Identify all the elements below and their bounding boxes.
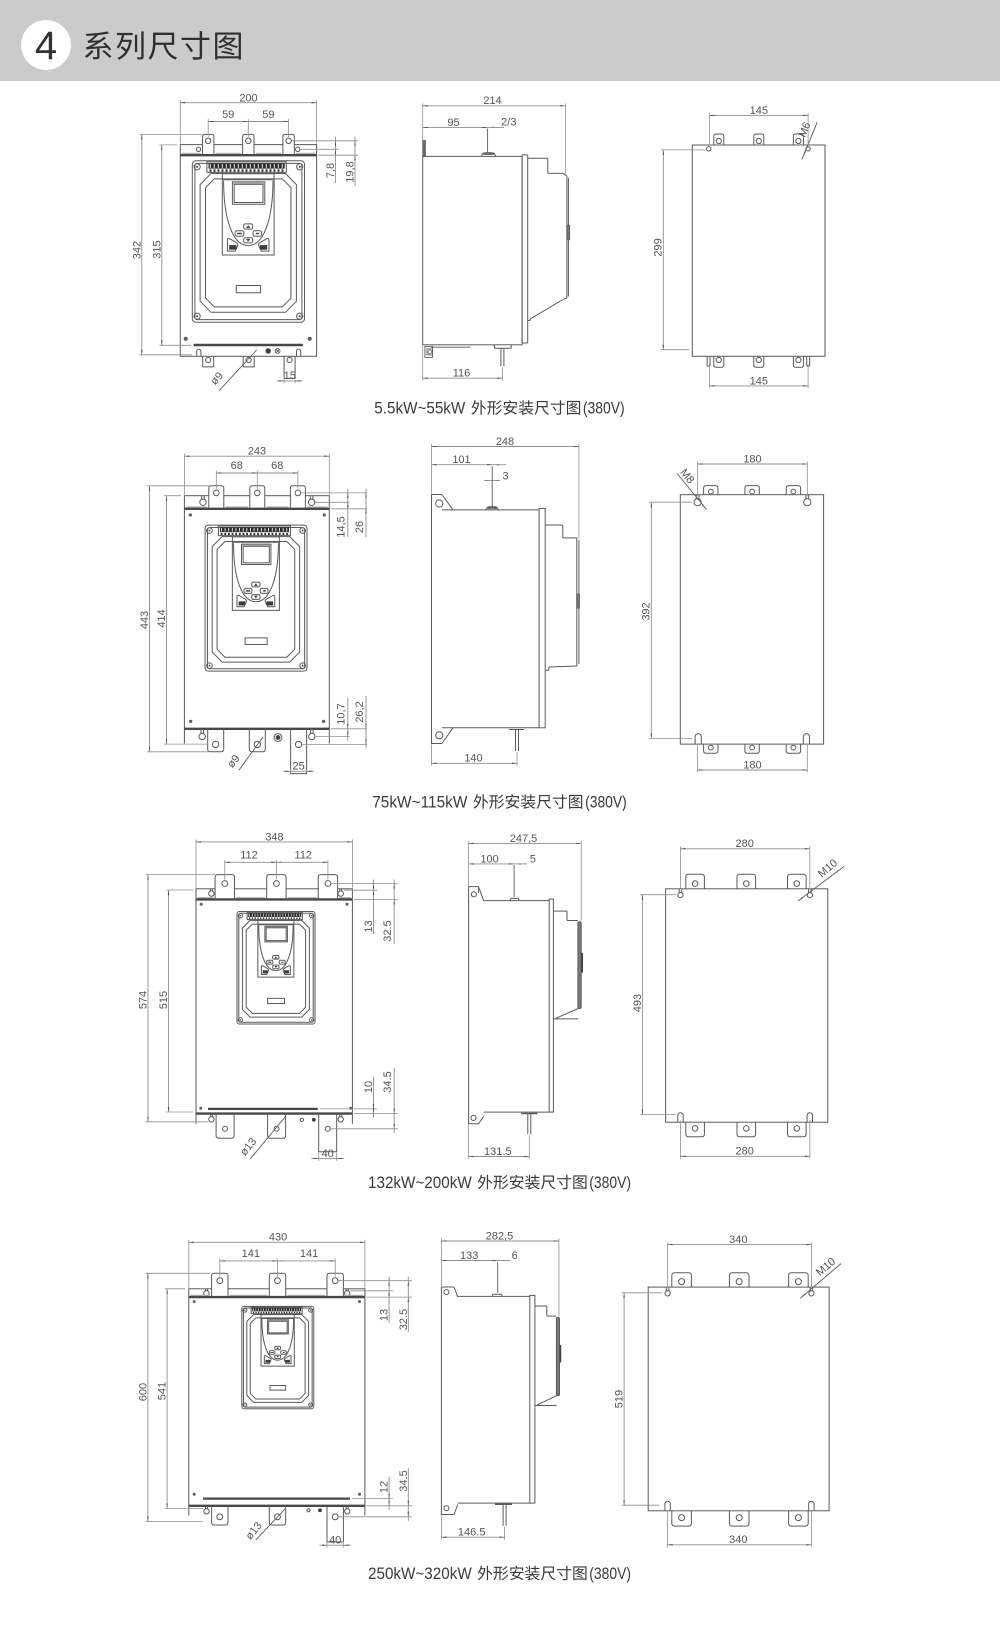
svg-text:280: 280: [736, 838, 754, 850]
svg-text:131.5: 131.5: [484, 1146, 512, 1158]
svg-text:116: 116: [453, 368, 471, 380]
svg-text:112: 112: [240, 850, 258, 862]
svg-text:59: 59: [262, 109, 274, 121]
svg-text:(380V): (380V): [585, 793, 627, 812]
svg-text:430: 430: [269, 1232, 287, 1244]
svg-text:ø13: ø13: [238, 1136, 259, 1158]
svg-text:519: 519: [614, 1390, 626, 1408]
svg-text:145: 145: [750, 105, 768, 117]
svg-text:133: 133: [460, 1250, 478, 1262]
svg-text:95: 95: [447, 117, 459, 129]
svg-text:7,8: 7,8: [325, 163, 337, 178]
svg-text:101: 101: [452, 454, 470, 466]
svg-text:146.5: 146.5: [458, 1527, 486, 1539]
svg-text:248: 248: [496, 436, 514, 448]
svg-text:140: 140: [464, 753, 482, 765]
svg-text:32.5: 32.5: [382, 920, 394, 941]
svg-text:141: 141: [300, 1248, 318, 1260]
svg-text:ø9: ø9: [208, 370, 225, 388]
svg-text:75kW~115kW: 75kW~115kW: [372, 793, 467, 812]
svg-text:141: 141: [242, 1248, 260, 1260]
svg-text:392: 392: [641, 602, 653, 620]
svg-text:M10: M10: [814, 1256, 838, 1279]
svg-text:32.5: 32.5: [398, 1309, 410, 1330]
svg-text:26: 26: [354, 521, 366, 533]
svg-text:2/3: 2/3: [501, 117, 516, 129]
svg-text:(380V): (380V): [589, 1173, 631, 1192]
svg-text:34.5: 34.5: [398, 1470, 410, 1491]
svg-text:180: 180: [743, 759, 761, 771]
svg-text:340: 340: [729, 1534, 747, 1546]
svg-text:ø9: ø9: [225, 753, 242, 771]
svg-text:34.5: 34.5: [382, 1071, 394, 1092]
svg-text:4: 4: [35, 24, 57, 68]
svg-text:13: 13: [363, 920, 375, 932]
svg-text:342: 342: [131, 241, 143, 259]
svg-text:243: 243: [248, 446, 266, 458]
svg-text:145: 145: [750, 375, 768, 387]
svg-text:M8: M8: [677, 467, 696, 486]
svg-text:3: 3: [502, 470, 508, 482]
svg-text:340: 340: [729, 1234, 747, 1246]
svg-text:214: 214: [483, 95, 501, 107]
svg-text:ø13: ø13: [244, 1520, 265, 1542]
svg-text:10,7: 10,7: [336, 703, 348, 724]
svg-text:112: 112: [295, 850, 313, 862]
svg-text:68: 68: [231, 460, 243, 472]
svg-text:247,5: 247,5: [510, 833, 538, 845]
svg-text:282,5: 282,5: [486, 1230, 514, 1242]
svg-text:M10: M10: [816, 857, 840, 880]
svg-text:574: 574: [137, 991, 149, 1009]
svg-text:12: 12: [379, 1481, 391, 1493]
svg-text:19,8: 19,8: [344, 161, 356, 182]
svg-text:6: 6: [512, 1250, 518, 1262]
svg-text:13: 13: [379, 1309, 391, 1321]
svg-text:40: 40: [322, 1148, 334, 1160]
svg-text:315: 315: [151, 240, 163, 258]
svg-text:(380V): (380V): [589, 1564, 631, 1583]
svg-text:250kW~320kW: 250kW~320kW: [368, 1564, 472, 1583]
svg-text:100: 100: [480, 853, 498, 865]
svg-text:515: 515: [158, 991, 170, 1009]
svg-text:10: 10: [363, 1081, 375, 1093]
svg-text:280: 280: [736, 1146, 754, 1158]
svg-text:26,2: 26,2: [354, 701, 366, 722]
svg-text:600: 600: [137, 1383, 149, 1401]
svg-text:299: 299: [653, 238, 665, 256]
svg-text:200: 200: [239, 92, 257, 104]
svg-text:5: 5: [530, 853, 536, 865]
svg-text:25: 25: [292, 761, 304, 773]
svg-text:59: 59: [222, 109, 234, 121]
svg-text:180: 180: [743, 453, 761, 465]
svg-text:414: 414: [156, 609, 168, 627]
svg-text:443: 443: [139, 611, 151, 629]
svg-text:132kW~200kW: 132kW~200kW: [368, 1173, 472, 1192]
svg-text:68: 68: [271, 460, 283, 472]
svg-text:15: 15: [284, 370, 296, 382]
svg-text:493: 493: [632, 994, 644, 1012]
svg-text:40: 40: [329, 1535, 341, 1547]
svg-text:348: 348: [265, 831, 283, 843]
svg-text:14,5: 14,5: [336, 516, 348, 537]
svg-text:5.5kW~55kW: 5.5kW~55kW: [374, 399, 465, 418]
svg-text:(380V): (380V): [583, 399, 625, 418]
svg-text:541: 541: [157, 1382, 169, 1400]
